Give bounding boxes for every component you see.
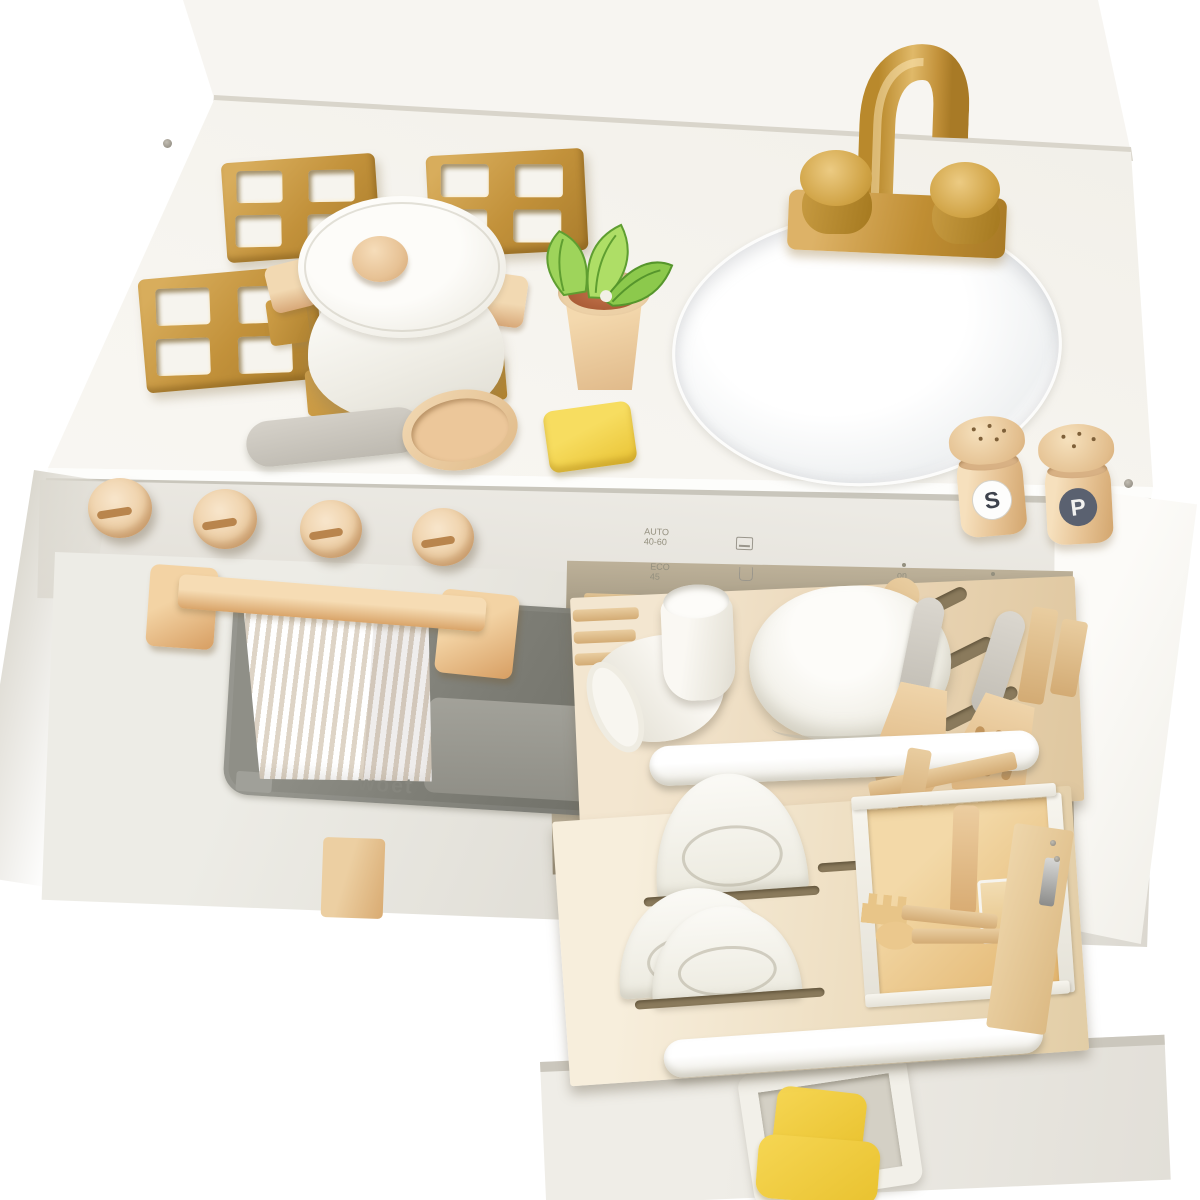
hinge-screw <box>1054 856 1060 862</box>
standing-cup <box>660 591 737 702</box>
toy-toast-below <box>755 1133 882 1200</box>
cap-hole <box>1092 437 1096 441</box>
cap-hole <box>978 437 982 441</box>
caddy-divider <box>950 805 980 916</box>
grate-hole <box>308 169 355 202</box>
cap-hole <box>987 424 991 428</box>
spoon-handle <box>912 929 1012 944</box>
pepper-shaker: P <box>1035 422 1123 548</box>
cap-hole <box>972 427 976 431</box>
faucet-knob-left <box>800 150 872 206</box>
grate-hole <box>515 164 563 197</box>
cap-hole <box>1002 429 1006 433</box>
salt-shaker: S <box>945 413 1037 542</box>
pepper-letter: P <box>1069 493 1088 522</box>
oven-knob-3 <box>300 500 362 558</box>
hinge-screw <box>1050 840 1056 846</box>
grate-hole <box>155 287 210 326</box>
indicator-dot <box>991 572 995 576</box>
toy-kitchen-product-photo: S P AUTO 40-60 ECO 45 on off woet <box>0 0 1200 1200</box>
oven-knob-1 <box>88 478 152 538</box>
glass-icon <box>739 567 753 581</box>
cap-hole <box>995 437 999 441</box>
dishwasher-program-2-label: ECO 45 <box>650 561 681 582</box>
screw-hole <box>1124 479 1133 488</box>
oven-knob-4 <box>412 508 474 566</box>
cap-hole <box>1077 432 1081 436</box>
grate-hole <box>236 170 283 203</box>
plant-leaves <box>528 207 685 327</box>
indicator-dot <box>902 563 906 567</box>
spoon-head <box>876 922 916 950</box>
pot-lid-knob <box>352 236 408 282</box>
plate-icon <box>736 537 753 551</box>
oven-knob-2 <box>193 489 257 549</box>
salt-letter: S <box>982 485 1002 514</box>
sponge <box>542 400 638 474</box>
grate-hole <box>235 215 282 248</box>
screw-hole <box>163 139 172 148</box>
cap-hole <box>1061 435 1065 439</box>
cabinet-leg <box>321 837 386 919</box>
grate-hole <box>156 337 211 376</box>
grate-hole <box>441 164 489 197</box>
faucet-knob-right <box>930 162 1000 218</box>
cap-hole <box>1072 444 1076 448</box>
dishwasher-program-1-label: AUTO 40-60 <box>644 526 683 547</box>
